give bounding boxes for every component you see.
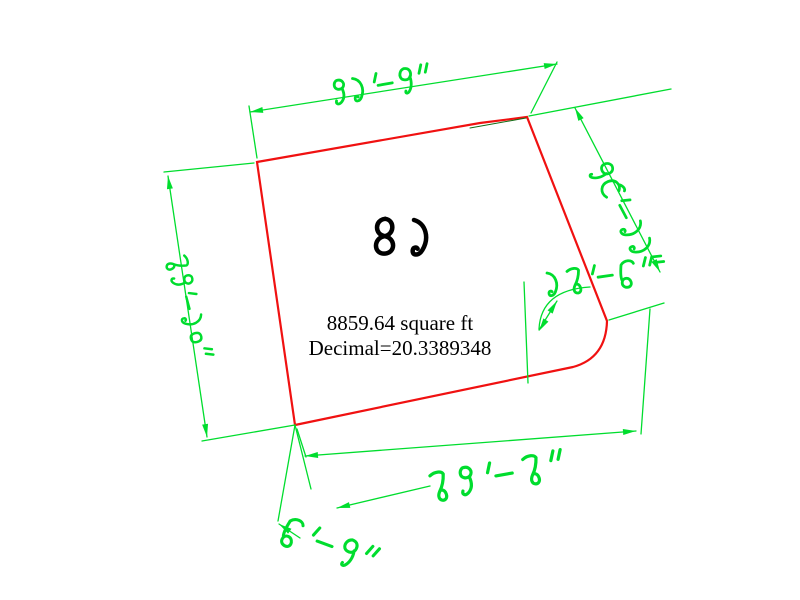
- bn-glyph: [459, 466, 475, 495]
- bn-glyph: [313, 527, 319, 536]
- bn-glyph: [546, 272, 558, 296]
- dimension-arrowhead: [165, 176, 173, 190]
- bn-glyph: [522, 455, 540, 486]
- dimension-line: [305, 431, 636, 456]
- extension-line: [337, 486, 430, 508]
- bn-glyph: [333, 79, 347, 104]
- bn-glyph: [376, 219, 393, 254]
- dimension-arrowhead: [336, 502, 350, 511]
- bn-glyph: [619, 260, 637, 288]
- plot-number: [376, 219, 426, 255]
- decimal-text: Decimal=20.3389348: [0, 336, 800, 360]
- bn-glyph: [549, 450, 561, 461]
- bn-glyph: [598, 275, 612, 277]
- bn-glyph: [373, 74, 378, 82]
- cad-canvas: 8859.64 square ft Decimal=20.3389348: [0, 0, 800, 600]
- dimension-arrowhead: [623, 428, 636, 435]
- bn-glyph: [165, 255, 189, 270]
- area-text: 8859.64 square ft: [0, 311, 800, 335]
- bn-glyph: [317, 541, 332, 546]
- dimension-arrowhead: [305, 452, 318, 459]
- bn-glyph: [496, 473, 512, 476]
- bn-glyph: [430, 471, 448, 502]
- dimension-arrowhead: [202, 424, 210, 438]
- extension-line: [164, 163, 254, 172]
- bn-glyph: [622, 197, 630, 203]
- extension-line: [202, 425, 295, 441]
- extension-line: [531, 62, 557, 113]
- dimension-arrowhead: [250, 107, 264, 115]
- bn-glyph: [486, 463, 491, 473]
- bn-glyph: [378, 83, 392, 86]
- dimension-text-notch: [546, 257, 656, 299]
- dimension-line: [250, 64, 557, 112]
- bn-glyph: [367, 545, 380, 557]
- extension-line: [278, 425, 295, 521]
- bn-glyph: [186, 297, 189, 309]
- bn-glyph: [591, 266, 595, 274]
- bn-glyph: [588, 161, 614, 182]
- extension-line: [249, 106, 257, 158]
- bn-glyph: [413, 220, 426, 255]
- bn-glyph: [338, 538, 359, 568]
- bn-glyph: [418, 64, 429, 74]
- extension-line: [529, 89, 671, 116]
- dimension-line: [168, 176, 207, 437]
- bn-glyph: [171, 274, 193, 288]
- extension-line: [295, 425, 311, 489]
- plot-drawing-svg: [0, 0, 800, 600]
- bn-glyph: [399, 68, 414, 94]
- plot-boundary: [257, 117, 607, 425]
- dimension-text-spur: [280, 516, 380, 576]
- bn-glyph: [642, 257, 653, 266]
- bn-glyph: [620, 205, 627, 217]
- dimension-text-top: [333, 64, 432, 106]
- bn-glyph: [352, 77, 365, 101]
- dimension-arrowhead: [572, 107, 583, 121]
- bn-glyph: [189, 291, 196, 296]
- dimension-text-bottom: [429, 450, 565, 502]
